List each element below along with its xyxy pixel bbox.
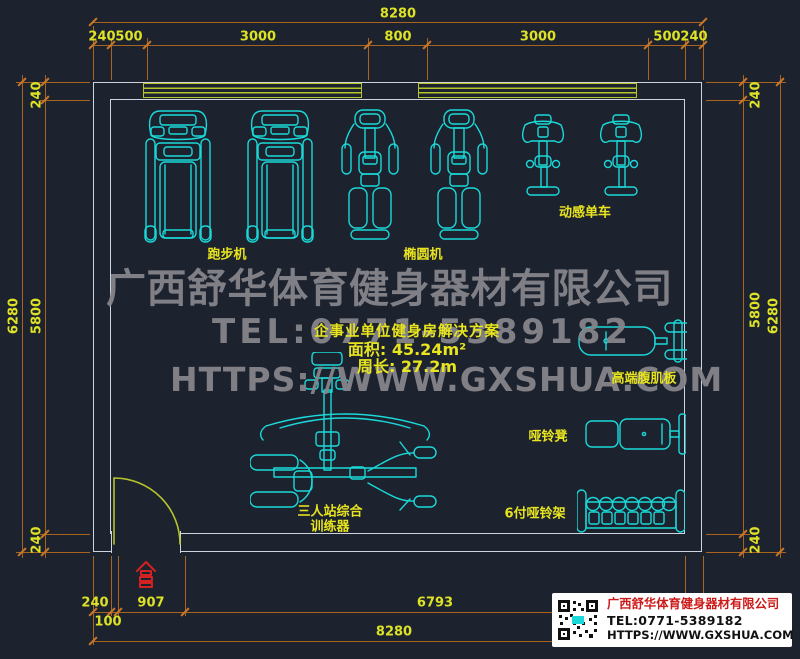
label-treadmill: 跑步机 — [207, 244, 246, 263]
spin-bike-2 — [598, 114, 644, 200]
dim-bottom-seg: 100 — [94, 615, 121, 630]
dim-right-seg: 240 — [749, 526, 764, 553]
label-dumbbell-bench: 哑铃凳 — [528, 426, 567, 445]
card-company: 广西舒华体育健身器材有限公司 — [607, 597, 794, 612]
dim-line — [743, 75, 744, 558]
extension-line — [118, 556, 119, 616]
entry-symbol — [134, 560, 158, 590]
card-tel: TEL:0771-5389182 — [607, 613, 794, 629]
dim-top-total: 8280 — [380, 7, 416, 22]
dim-line — [45, 75, 46, 558]
dim-top-seg: 3000 — [240, 30, 276, 45]
dim-left-total: 6280 — [7, 298, 22, 334]
elliptical-2 — [430, 108, 488, 242]
company-info-card: 广西舒华体育健身器材有限公司 TEL:0771-5389182 HTTPS://… — [552, 593, 792, 647]
treadmill-1 — [144, 108, 212, 250]
dim-top-seg: 500 — [653, 30, 680, 45]
dumbbell-rack — [577, 489, 685, 533]
extension-line — [706, 552, 786, 553]
dim-bottom-seg: 240 — [81, 596, 108, 611]
extension-line — [40, 534, 90, 535]
dim-bottom-seg: 6793 — [417, 596, 453, 611]
label-multi-station-2: 训练器 — [310, 516, 349, 535]
extension-line — [111, 556, 112, 616]
dim-line — [93, 22, 703, 23]
spin-bike-1 — [520, 114, 566, 200]
extension-line — [185, 556, 186, 616]
window-band — [418, 83, 637, 98]
dim-right-seg: 5800 — [749, 292, 764, 328]
dim-left-seg: 240 — [30, 526, 45, 553]
dim-line — [22, 75, 23, 558]
label-elliptical: 椭圆机 — [403, 244, 442, 263]
extension-line — [16, 82, 90, 83]
dim-right-total: 6280 — [767, 298, 782, 334]
window-band — [143, 83, 362, 98]
dim-top-seg: 240 — [88, 30, 115, 45]
watermark-company: 广西舒华体育健身器材有限公司 — [106, 256, 673, 314]
dim-bottom-seg: 907 — [137, 596, 164, 611]
extension-line — [16, 552, 90, 553]
treadmill-2 — [246, 108, 314, 250]
dim-right-seg: 240 — [749, 81, 764, 108]
plan-perimeter: 周长: 27.2m — [357, 353, 457, 377]
card-url: HTTPS://WWW.GXSHUA.COM — [607, 628, 794, 642]
dim-line — [93, 45, 703, 46]
label-abs-board: 高端腹肌板 — [611, 368, 676, 387]
elliptical-1 — [341, 108, 399, 242]
extension-line — [706, 82, 786, 83]
dumbbell-bench — [584, 412, 686, 456]
dim-top-seg: 3000 — [520, 30, 556, 45]
dim-bottom-total: 8280 — [376, 625, 412, 640]
dim-left-seg: 5800 — [30, 298, 45, 334]
dim-top-seg: 800 — [384, 30, 411, 45]
dim-top-seg: 500 — [115, 30, 142, 45]
door-swing — [110, 472, 186, 552]
extension-line — [40, 100, 90, 101]
qr-code-icon — [556, 598, 600, 642]
label-spin-bike: 动感单车 — [559, 202, 611, 221]
floor-plan-canvas: 8280 240 500 3000 800 3000 500 240 6280 … — [0, 0, 800, 659]
dim-left-seg: 240 — [30, 81, 45, 108]
label-dumbbell-rack: 6付哑铃架 — [504, 503, 565, 522]
dim-top-seg: 240 — [680, 30, 707, 45]
